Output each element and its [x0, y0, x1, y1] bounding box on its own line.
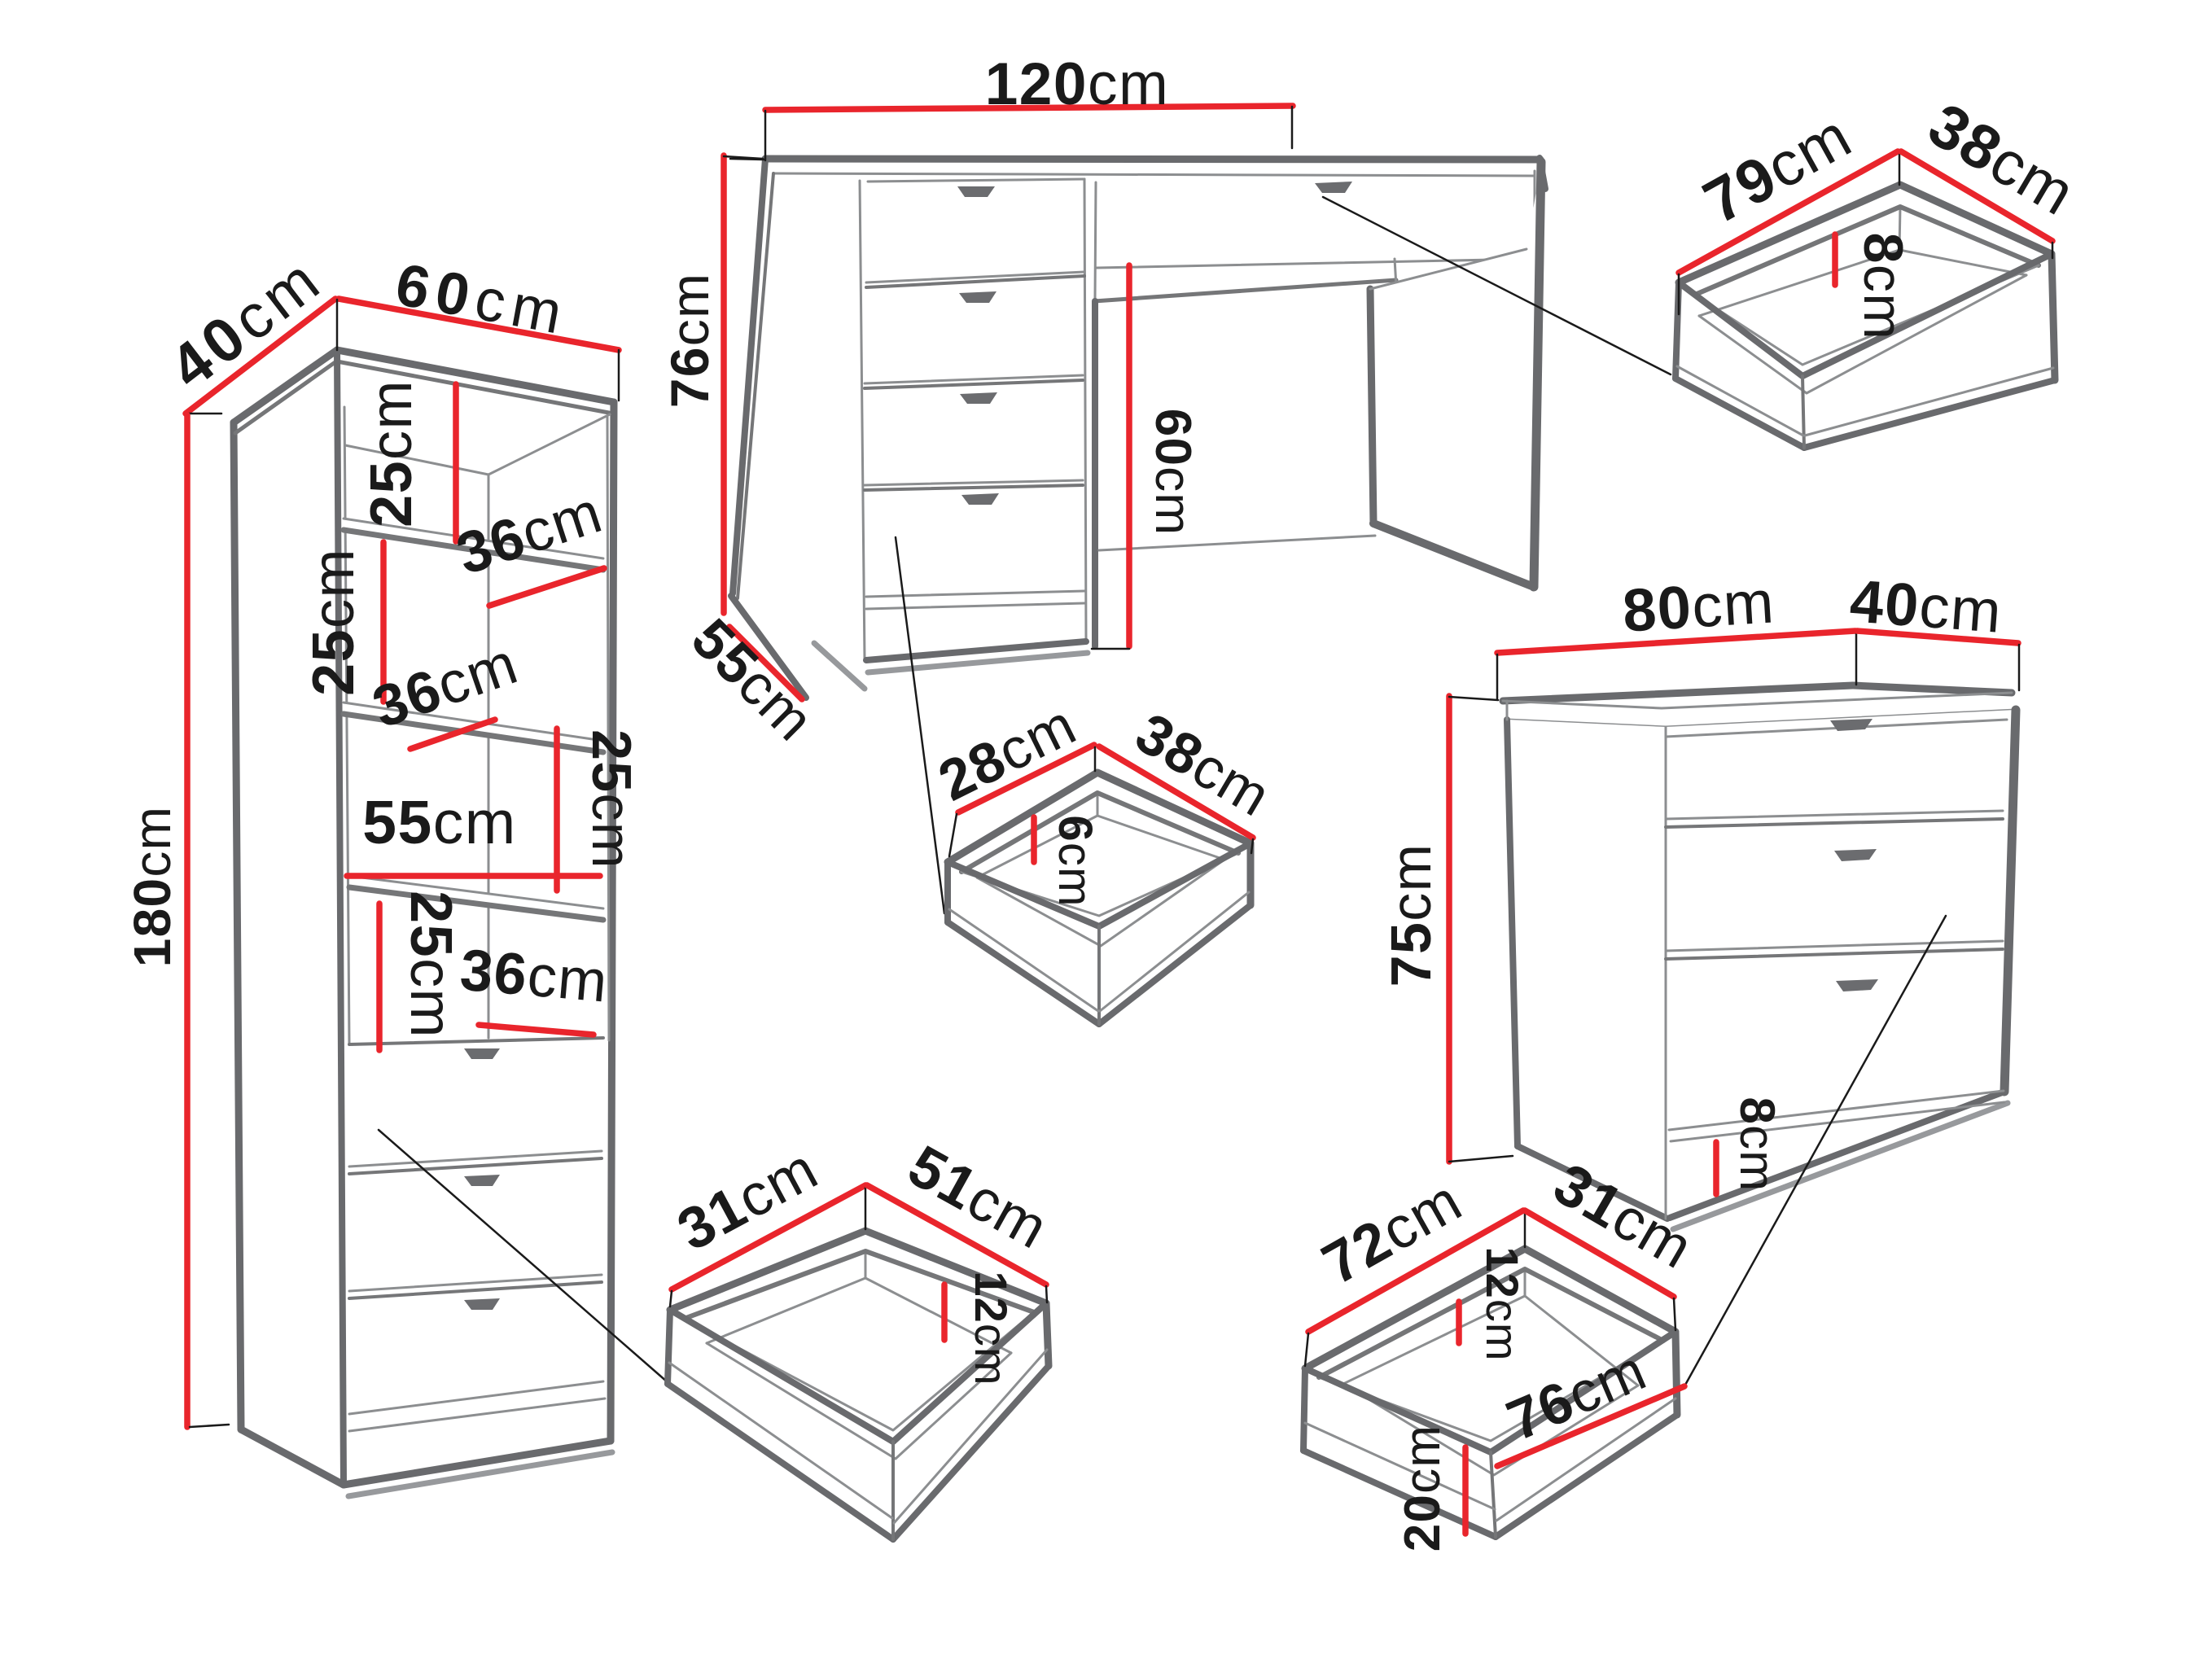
svg-text:25cm: 25cm	[398, 891, 463, 1039]
svg-text:8cm: 8cm	[1852, 233, 1914, 341]
svg-text:60cm: 60cm	[1145, 409, 1201, 536]
svg-text:180cm: 180cm	[123, 806, 182, 968]
svg-text:8cm: 8cm	[1730, 1097, 1785, 1193]
svg-text:20cm: 20cm	[1395, 1425, 1451, 1552]
svg-text:36cm: 36cm	[458, 937, 611, 1014]
svg-text:76cm: 76cm	[659, 273, 720, 409]
svg-text:25cm: 25cm	[359, 379, 424, 527]
svg-text:6cm: 6cm	[1049, 815, 1102, 907]
svg-text:12cm: 12cm	[966, 1271, 1017, 1385]
svg-text:55cm: 55cm	[362, 788, 516, 856]
svg-text:25cm: 25cm	[301, 548, 366, 696]
svg-text:25cm: 25cm	[580, 729, 642, 869]
svg-text:75cm: 75cm	[1379, 843, 1443, 987]
svg-text:80cm: 80cm	[1621, 567, 1777, 644]
svg-text:40cm: 40cm	[1848, 567, 2005, 646]
svg-text:120cm: 120cm	[985, 51, 1170, 117]
svg-text:12cm: 12cm	[1477, 1246, 1528, 1361]
